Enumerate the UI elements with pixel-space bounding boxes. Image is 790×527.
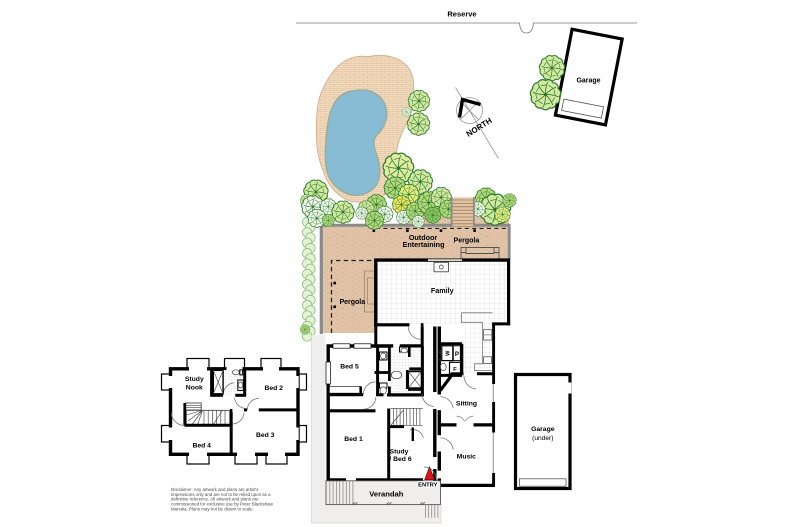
- svg-text:Garage: Garage: [576, 78, 600, 85]
- svg-text:Entertaining: Entertaining: [403, 240, 445, 249]
- svg-text:Bed 3: Bed 3: [256, 432, 275, 439]
- svg-text:Manuka. Plans may not be drawn: Manuka. Plans may not be drawn to scale.: [171, 506, 254, 511]
- svg-text:Study: Study: [390, 448, 409, 455]
- svg-text:Nook: Nook: [186, 385, 203, 392]
- svg-text:Pergola: Pergola: [339, 299, 365, 306]
- svg-text:Study: Study: [185, 376, 204, 383]
- svg-text:Pergola: Pergola: [454, 237, 480, 244]
- svg-text:Music: Music: [457, 453, 476, 460]
- svg-text:Verandah: Verandah: [369, 490, 404, 499]
- svg-text:/ Bed 6: / Bed 6: [389, 456, 412, 463]
- svg-text:Bed 2: Bed 2: [264, 385, 283, 392]
- svg-text:W: W: [446, 350, 452, 356]
- svg-text:F: F: [453, 367, 457, 373]
- svg-text:Garage: Garage: [531, 426, 555, 433]
- svg-text:Family: Family: [431, 286, 454, 295]
- svg-text:(under): (under): [532, 435, 553, 442]
- svg-text:Reserve: Reserve: [447, 10, 476, 19]
- svg-text:Bed 1: Bed 1: [344, 436, 363, 443]
- svg-text:P: P: [455, 351, 459, 358]
- svg-text:Bed 5: Bed 5: [340, 363, 359, 370]
- svg-text:Bed 4: Bed 4: [192, 443, 211, 450]
- svg-text:ENTRY: ENTRY: [418, 483, 438, 489]
- svg-text:Sitting: Sitting: [456, 401, 477, 408]
